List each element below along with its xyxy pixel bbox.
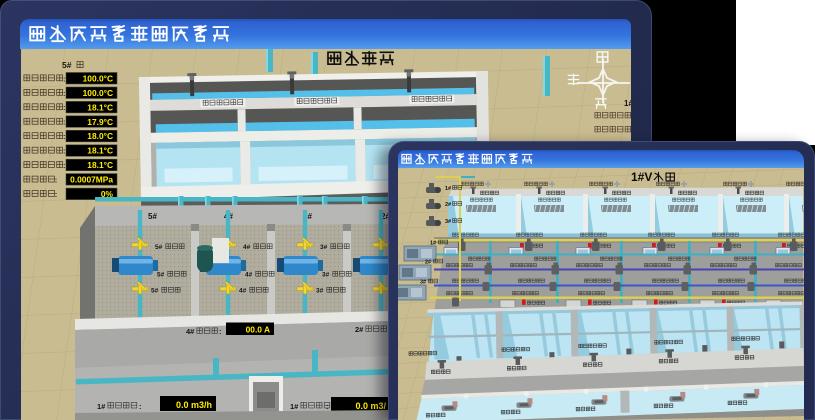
- svg-text:18.1°C: 18.1°C: [87, 146, 113, 156]
- svg-text:3#: 3#: [316, 288, 324, 295]
- svg-text:5#: 5#: [151, 288, 159, 295]
- svg-text:3#: 3#: [320, 244, 328, 251]
- svg-text:00.0 A: 00.0 A: [246, 324, 270, 334]
- svg-text:5#: 5#: [62, 60, 72, 70]
- svg-text:0.0 m3/: 0.0 m3/: [355, 401, 386, 411]
- svg-text:2#: 2#: [425, 260, 431, 266]
- svg-text:1#: 1#: [624, 99, 631, 108]
- svg-text:3#: 3#: [420, 280, 426, 286]
- svg-text:100.0°C: 100.0°C: [83, 88, 113, 98]
- svg-text::: :: [63, 147, 66, 156]
- svg-text::: :: [63, 89, 66, 98]
- svg-text:18.1°C: 18.1°C: [87, 102, 113, 112]
- svg-text::: :: [139, 402, 142, 411]
- svg-text:0.0 m3/h: 0.0 m3/h: [176, 400, 212, 410]
- svg-text:4#: 4#: [243, 244, 251, 251]
- svg-text:4#: 4#: [239, 288, 247, 295]
- svg-text:100.0°C: 100.0°C: [83, 73, 113, 83]
- svg-text::: :: [55, 190, 58, 199]
- svg-text::: :: [63, 103, 66, 112]
- svg-text:4#: 4#: [245, 272, 253, 279]
- svg-text::: :: [219, 327, 222, 336]
- svg-text:18.1°C: 18.1°C: [87, 160, 113, 170]
- svg-text:1#: 1#: [430, 241, 436, 247]
- svg-text:1#V: 1#V: [631, 170, 652, 184]
- svg-text:1#: 1#: [445, 186, 451, 192]
- svg-text::: :: [326, 402, 329, 411]
- svg-text::: :: [63, 74, 66, 83]
- svg-text:5#: 5#: [157, 272, 165, 279]
- svg-text:5#: 5#: [148, 212, 157, 221]
- svg-text::: :: [63, 161, 66, 170]
- svg-text::: :: [63, 132, 66, 141]
- svg-text:0.0007MPa: 0.0007MPa: [70, 175, 113, 185]
- svg-text:17.9°C: 17.9°C: [87, 117, 113, 127]
- svg-text:2#: 2#: [355, 325, 364, 334]
- svg-text:5#: 5#: [155, 244, 163, 251]
- svg-text:3#: 3#: [322, 272, 330, 279]
- svg-text:18.0°C: 18.0°C: [87, 131, 113, 141]
- svg-text:4#: 4#: [186, 327, 195, 336]
- svg-text:1#: 1#: [290, 402, 299, 411]
- svg-text:2#: 2#: [445, 202, 451, 208]
- svg-text::: :: [55, 175, 58, 184]
- svg-text:3#: 3#: [445, 219, 451, 225]
- svg-text:1#: 1#: [97, 402, 106, 411]
- svg-text::: :: [63, 118, 66, 127]
